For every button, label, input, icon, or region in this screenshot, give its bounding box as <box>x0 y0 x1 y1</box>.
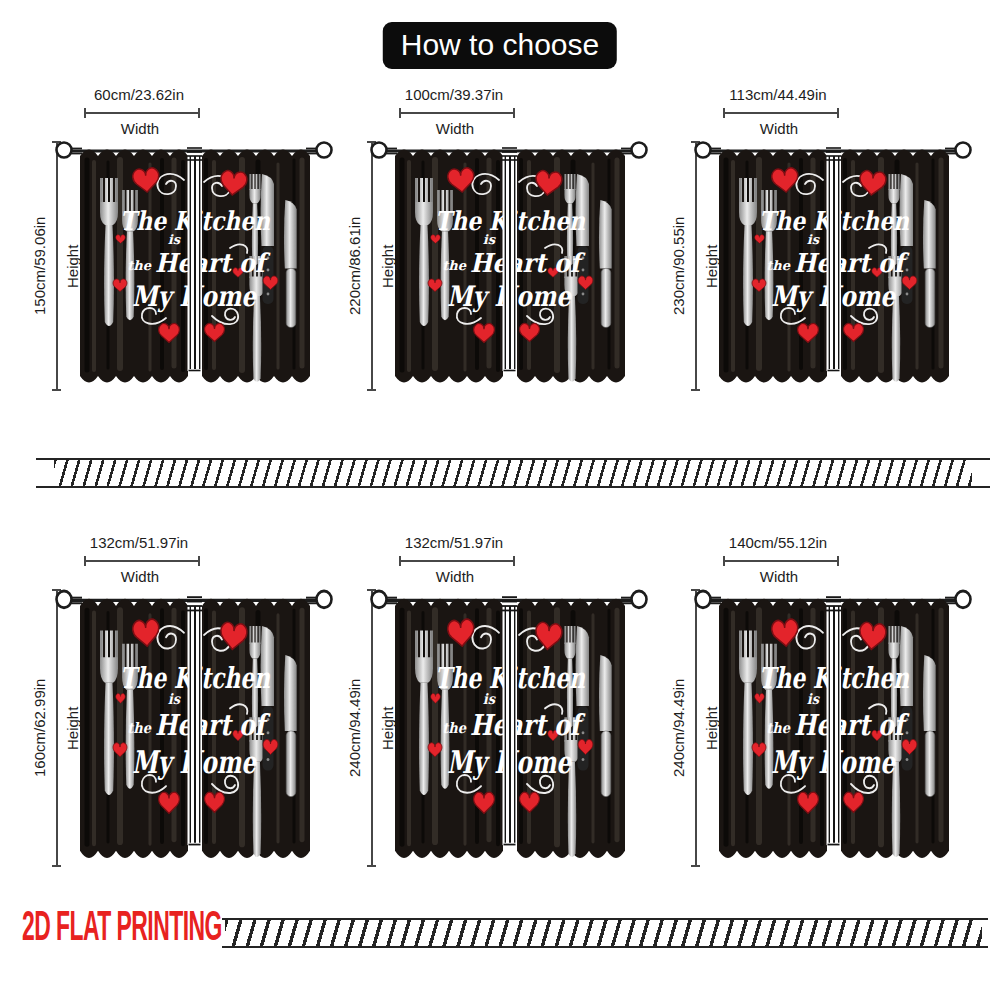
height-value: 150cm/59.06in <box>28 141 50 391</box>
page-title: How to choose <box>383 22 617 69</box>
page: The Kitchen is the Heart of My Home <box>0 0 1000 1000</box>
divider-hatch-bar <box>36 458 990 488</box>
height-value: 160cm/62.99in <box>28 589 50 867</box>
height-value: 240cm/94.49in <box>667 589 689 867</box>
curtain-preview <box>693 138 973 388</box>
width-dimension-line <box>723 556 839 566</box>
curtain-preview <box>369 138 649 388</box>
size-card-2: 100cm/39.37in Width 220cm/86.61in Height <box>333 84 653 414</box>
width-label: Width <box>399 568 511 585</box>
width-label: Width <box>399 120 511 137</box>
printing-type-label: 2D FLAT PRINTING <box>22 901 222 950</box>
width-label: Width <box>84 568 196 585</box>
height-value: 220cm/86.61in <box>343 141 365 391</box>
width-dimension-line <box>723 108 839 118</box>
width-value: 140cm/55.12in <box>693 534 863 551</box>
size-card-4: 132cm/51.97in Width 160cm/62.99in Height <box>18 532 338 888</box>
height-value: 240cm/94.49in <box>343 589 365 867</box>
width-dimension-line <box>399 556 515 566</box>
footer-hatch-bar <box>222 918 988 948</box>
width-value: 113cm/44.49in <box>693 86 863 103</box>
curtain-preview <box>54 138 334 388</box>
width-label: Width <box>84 120 196 137</box>
width-dimension-line <box>84 108 200 118</box>
width-value: 60cm/23.62in <box>54 86 224 103</box>
width-label: Width <box>723 120 835 137</box>
curtain-preview <box>369 586 649 864</box>
size-card-3: 113cm/44.49in Width 230cm/90.55in Height <box>657 84 977 414</box>
height-value: 230cm/90.55in <box>667 141 689 391</box>
curtain-preview <box>693 586 973 864</box>
curtain-preview <box>54 586 334 864</box>
width-value: 132cm/51.97in <box>54 534 224 551</box>
width-value: 100cm/39.37in <box>369 86 539 103</box>
width-dimension-line <box>84 556 200 566</box>
size-card-5: 132cm/51.97in Width 240cm/94.49in Height <box>333 532 653 888</box>
footer-hatch-pattern <box>225 920 982 946</box>
width-dimension-line <box>399 108 515 118</box>
divider-hatch-pattern <box>54 460 972 486</box>
width-value: 132cm/51.97in <box>369 534 539 551</box>
width-label: Width <box>723 568 835 585</box>
size-card-1: 60cm/23.62in Width 150cm/59.06in Height <box>18 84 338 414</box>
size-card-6: 140cm/55.12in Width 240cm/94.49in Height <box>657 532 977 888</box>
